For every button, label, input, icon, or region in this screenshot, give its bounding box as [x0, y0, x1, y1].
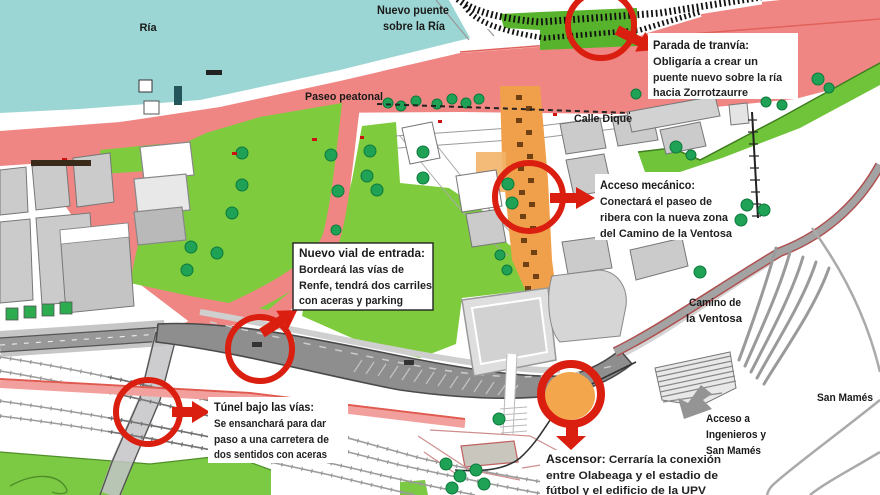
svg-text:puente nuevo sobre la ría: puente nuevo sobre la ría — [653, 72, 783, 84]
svg-text:San Mamés: San Mamés — [706, 445, 761, 457]
svg-text:Túnel bajo las vías:: Túnel bajo las vías: — [214, 402, 314, 414]
svg-text:con aceras y parking: con aceras y parking — [299, 295, 403, 307]
svg-text:Paseo peatonal: Paseo peatonal — [305, 91, 383, 103]
svg-text:dos sentidos con aceras: dos sentidos con aceras — [214, 449, 327, 461]
svg-text:San Mamés: San Mamés — [817, 392, 873, 404]
svg-text:Bordeará las vías de: Bordeará las vías de — [299, 264, 404, 276]
svg-text:sobre la Ría: sobre la Ría — [383, 21, 446, 33]
svg-text:entre Olabeaga y el estadio de: entre Olabeaga y el estadio de — [546, 470, 718, 482]
svg-text:fútbol y el edificio de la UPV: fútbol y el edificio de la UPV — [546, 485, 707, 495]
svg-text:Acceso mecánico:: Acceso mecánico: — [600, 180, 695, 192]
svg-text:Nuevo puente: Nuevo puente — [377, 5, 449, 17]
svg-text:Conectará el paseo de: Conectará el paseo de — [600, 196, 712, 208]
svg-text:Ría: Ría — [139, 22, 157, 34]
svg-text:Se ensanchará para dar: Se ensanchará para dar — [214, 418, 327, 430]
svg-text:la Ventosa: la Ventosa — [686, 313, 743, 325]
svg-text:Parada de tranvía:: Parada de tranvía: — [653, 40, 749, 52]
svg-text:ribera con la nueva zona: ribera con la nueva zona — [600, 212, 729, 224]
svg-text:hacia Zorrotzaurre: hacia Zorrotzaurre — [653, 87, 748, 99]
svg-text:Nuevo vial de entrada:: Nuevo vial de entrada: — [299, 248, 425, 260]
svg-text:del Camino de la Ventosa: del Camino de la Ventosa — [600, 228, 733, 240]
svg-text:Obligaría a crear un: Obligaría a crear un — [653, 56, 758, 68]
svg-text:Ingenieros y: Ingenieros y — [706, 429, 767, 441]
svg-text:Calle Dique: Calle Dique — [574, 113, 632, 125]
svg-text:Camino de: Camino de — [689, 297, 741, 309]
svg-text:paso a una carretera de: paso a una carretera de — [214, 434, 329, 446]
svg-text:Renfe, tendrá dos carriles: Renfe, tendrá dos carriles — [299, 280, 432, 292]
svg-text:Ascensor: Cerraría la conexión: Ascensor: Cerraría la conexión — [546, 454, 721, 466]
svg-text:Acceso a: Acceso a — [706, 413, 751, 425]
